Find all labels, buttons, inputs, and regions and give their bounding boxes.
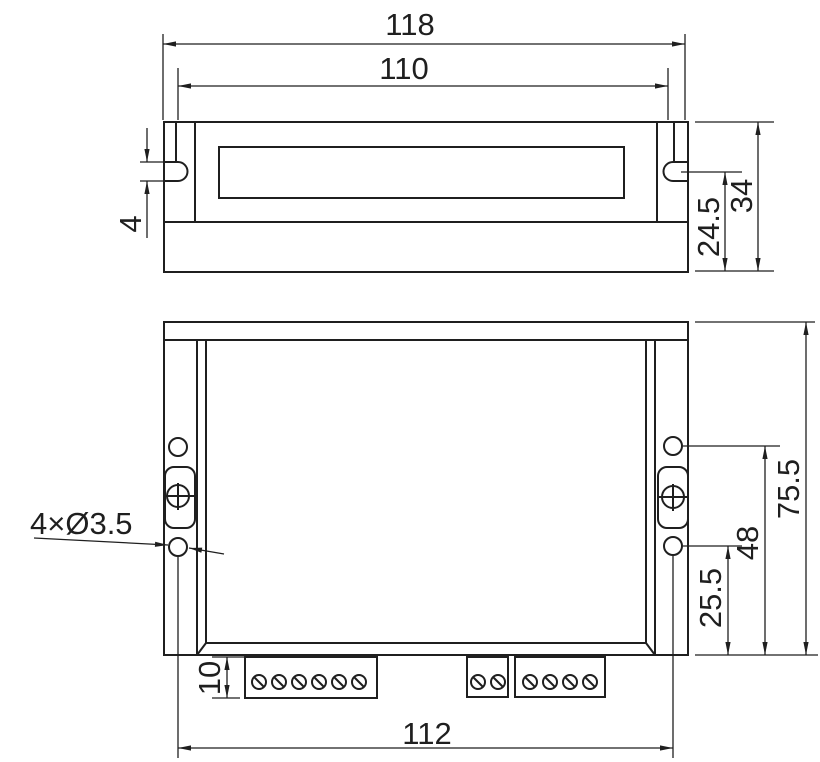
dim-label-75-5: 75.5 xyxy=(771,459,806,519)
screw-slot-left xyxy=(165,467,195,528)
mount-hole-top-left xyxy=(169,438,187,456)
dim-body-width: 110 xyxy=(178,51,668,120)
dim-label-110: 110 xyxy=(379,51,428,86)
terminal-block-middle xyxy=(467,657,508,697)
dim-label-10: 10 xyxy=(192,661,227,695)
top-view xyxy=(164,122,688,272)
front-view xyxy=(164,322,688,698)
dim-label-118: 118 xyxy=(385,7,434,42)
front-view-left-flange xyxy=(164,340,197,655)
front-view-body-outline xyxy=(197,340,655,655)
terminal-screws-right xyxy=(523,675,597,689)
mount-hole-bottom-right xyxy=(664,537,682,555)
dim-label-25-5: 25.5 xyxy=(693,568,728,628)
top-view-left-mount-slot xyxy=(164,162,188,181)
dimension-drawing: 118 110 4 24.5 34 xyxy=(0,0,820,762)
dim-label-48: 48 xyxy=(730,526,765,560)
dim-label-34: 34 xyxy=(724,179,759,213)
top-view-cover-window xyxy=(219,147,624,198)
mount-hole-bottom-left xyxy=(169,538,187,556)
top-view-base-plate xyxy=(164,222,688,272)
mount-hole-top-right xyxy=(664,437,682,455)
front-view-top-bar xyxy=(164,322,688,340)
terminal-block-right xyxy=(515,657,605,697)
dim-label-112: 112 xyxy=(402,716,451,751)
dimensions: 118 110 4 24.5 34 xyxy=(30,7,818,758)
dim-lower-hole: 25.5 xyxy=(683,546,742,655)
terminal-block-right-outline xyxy=(515,657,605,697)
terminal-screws-left xyxy=(252,675,366,689)
front-view-right-chamfer xyxy=(646,643,655,655)
terminal-screws-middle xyxy=(471,675,505,689)
dim-label-4: 4 xyxy=(113,215,148,232)
terminal-block-left xyxy=(245,657,377,698)
technical-drawing-page: 118 110 4 24.5 34 xyxy=(0,0,820,762)
top-view-body-outline xyxy=(164,122,688,222)
hole-callout-label: 4×Ø3.5 xyxy=(30,506,133,541)
front-view-left-chamfer xyxy=(197,643,206,655)
dim-label-24-5: 24.5 xyxy=(691,197,726,257)
dim-terminal-height: 10 xyxy=(192,657,244,698)
